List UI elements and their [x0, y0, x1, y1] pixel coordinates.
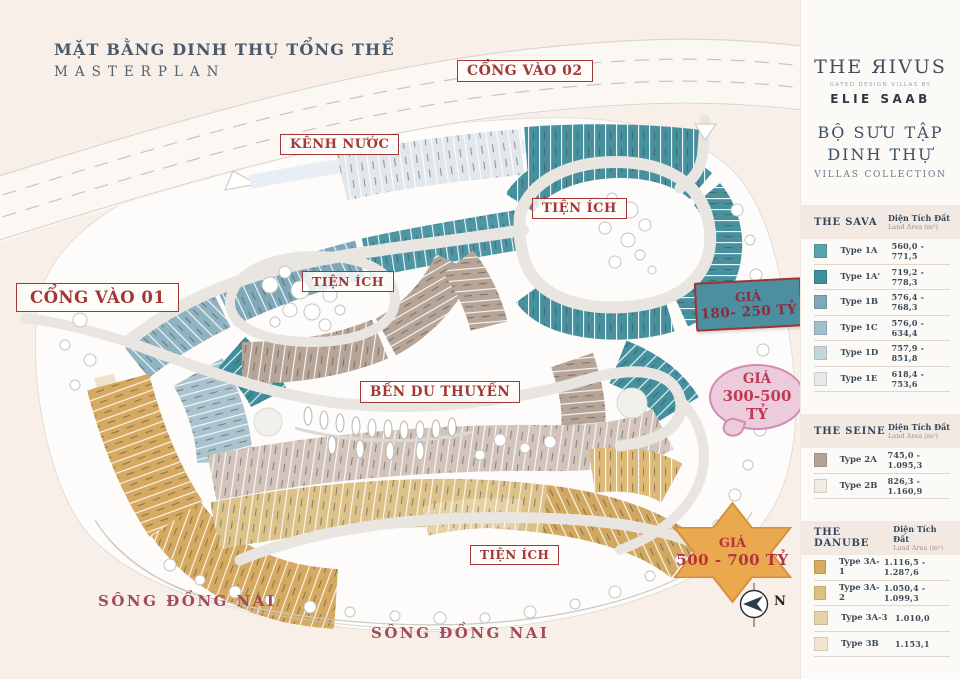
legend-type-swatch [814, 453, 827, 467]
collection-subtitle: VILLAS COLLECTION [801, 170, 960, 180]
legend-area-header-en: Land Area (m²) [893, 544, 950, 552]
legend-area-header: Diện Tích ĐấtLand Area (m²) [888, 422, 950, 440]
price-range: 500 - 700 TỶ [663, 551, 802, 569]
label-canal: KÊNH NƯỚC [280, 134, 399, 155]
legend-area-value: 560,0 - 771,5 [892, 241, 950, 261]
legend-type-label: Type 1A' [840, 272, 891, 282]
legend-type-label: Type 1C [840, 323, 891, 333]
price-label: GIÁ [711, 371, 803, 387]
price-range: 300-500 TỶ [711, 387, 803, 423]
legend-row: Type 1D757,9 - 851,8 [814, 341, 950, 367]
legend-area-header-vi: Diện Tích Đất [893, 524, 950, 544]
compass-icon [734, 583, 774, 627]
legend-row: Type 3A-31.010,0 [814, 606, 950, 632]
legend-section-header: THE DANUBEDiện Tích ĐấtLand Area (m²) [801, 521, 960, 555]
legend-section: THE SEINEDiện Tích ĐấtLand Area (m²)Type… [801, 414, 960, 499]
legend-area-header: Diện Tích ĐấtLand Area (m²) [893, 524, 950, 552]
legend-type-swatch [814, 372, 827, 386]
legend-type-swatch [814, 560, 826, 574]
legend-type-label: Type 3B [841, 639, 895, 649]
legend-row: Type 1C576,0 - 634,4 [814, 316, 950, 342]
legend-row: Type 3A-11.116,5 - 1.287,6 [814, 555, 950, 581]
label-river-left: SÔNG ĐỒNG NAI [98, 592, 276, 610]
legend-type-label: Type 1E [840, 374, 891, 384]
legend-row: Type 3A-21.050,4 - 1.099,3 [814, 581, 950, 607]
info-panel: THE ЯIVUS GATED DESIGN VILLAS BY ELIE SA… [800, 0, 960, 679]
legend-type-swatch [814, 479, 827, 493]
legend-row: Type 1A'719,2 - 778,3 [814, 265, 950, 291]
legend-area-value: 757,9 - 851,8 [892, 343, 950, 363]
legend-area-value: 576,4 - 768,3 [892, 292, 950, 312]
collection-line1: BỘ SƯU TẬP [801, 122, 960, 144]
page-title: MẶT BẰNG DINH THỤ TỔNG THỂ MASTERPLAN [54, 40, 395, 80]
legend-area-header-vi: Diện Tích Đất [888, 422, 950, 432]
legend-row: Type 2B826,3 - 1.160,9 [814, 474, 950, 500]
legend-area-value: 576,0 - 634,4 [892, 318, 950, 338]
label-amenity-left: TIỆN ÍCH [302, 271, 394, 292]
label-gate-01: CỔNG VÀO 01 [16, 283, 179, 312]
legend-type-label: Type 2B [840, 481, 888, 491]
title-english: MASTERPLAN [54, 64, 395, 80]
legend-area-header-en: Land Area (m²) [888, 223, 950, 231]
legend-section-name: THE SAVA [814, 217, 877, 228]
legend-type-swatch [814, 586, 826, 600]
legend-type-label: Type 2A [840, 455, 888, 465]
label-marina: BẾN DU THUYỀN [360, 381, 520, 403]
legend-area-header: Diện Tích ĐấtLand Area (m²) [888, 213, 950, 231]
legend-type-swatch [814, 244, 827, 258]
legend-sections: THE SAVADiện Tích ĐấtLand Area (m²)Type … [801, 205, 960, 679]
legend-section-name: THE DANUBE [814, 527, 893, 549]
legend-area-header-vi: Diện Tích Đất [888, 213, 950, 223]
label-amenity-right: TIỆN ÍCH [532, 198, 627, 219]
masterplan-page: MẶT BẰNG DINH THỤ TỔNG THỂ MASTERPLAN CỔ… [0, 0, 960, 679]
legend-type-label: Type 3A-3 [841, 613, 895, 623]
legend-row: Type 1A560,0 - 771,5 [814, 239, 950, 265]
legend-section: THE DANUBEDiện Tích ĐấtLand Area (m²)Typ… [801, 521, 960, 657]
legend-section-name: THE SEINE [814, 426, 885, 437]
legend-type-swatch [814, 346, 827, 360]
legend-type-label: Type 1B [840, 297, 891, 307]
brand-logo: THE ЯIVUS [801, 56, 960, 78]
legend-type-label: Type 1A [840, 246, 891, 256]
compass: N [734, 583, 794, 627]
legend-area-value: 745,0 - 1.095,3 [888, 450, 950, 470]
legend-type-label: Type 3A-2 [839, 583, 884, 603]
legend-row: Type 1E618,4 - 753,6 [814, 367, 950, 393]
label-river-bottom: SÔNG ĐỒNG NAI [371, 624, 549, 642]
price-callout-tier2: GIÁ 300-500 TỶ [709, 364, 805, 430]
legend-area-value: 1.116,5 - 1.287,6 [884, 557, 950, 577]
legend-type-label: Type 3A-1 [839, 557, 884, 577]
compass-north-label: N [774, 594, 786, 609]
label-gate-02: CỔNG VÀO 02 [457, 60, 593, 82]
legend-type-swatch [814, 637, 828, 651]
price-callout-tier1: GIÁ 180- 250 TỶ [694, 277, 803, 332]
legend-row: Type 1B576,4 - 768,3 [814, 290, 950, 316]
legend-area-value: 1.050,4 - 1.099,3 [884, 583, 950, 603]
legend-section: THE SAVADiện Tích ĐấtLand Area (m²)Type … [801, 205, 960, 392]
legend-area-header-en: Land Area (m²) [888, 432, 950, 440]
collection-title: BỘ SƯU TẬP DINH THỰ VILLAS COLLECTION [801, 122, 960, 180]
legend-type-swatch [814, 270, 827, 284]
legend-area-value: 1.153,1 [895, 639, 930, 649]
legend-area-value: 826,3 - 1.160,9 [888, 476, 950, 496]
brand-block: THE ЯIVUS GATED DESIGN VILLAS BY ELIE SA… [801, 56, 960, 106]
legend-area-value: 719,2 - 778,3 [892, 267, 950, 287]
legend-section-header: THE SAVADiện Tích ĐấtLand Area (m²) [801, 205, 960, 239]
legend-section-header: THE SEINEDiện Tích ĐấtLand Area (m²) [801, 414, 960, 448]
price-label: GIÁ [663, 536, 802, 551]
legend-area-value: 1.010,0 [895, 613, 930, 623]
collection-line2: DINH THỰ [801, 144, 960, 166]
brand-tagline: GATED DESIGN VILLAS BY [801, 82, 960, 88]
legend-row: Type 3B1.153,1 [814, 632, 950, 658]
legend-row: Type 2A745,0 - 1.095,3 [814, 448, 950, 474]
label-amenity-bottom: TIỆN ÍCH [470, 545, 559, 565]
brand-designer: ELIE SAAB [801, 92, 960, 106]
legend-type-swatch [814, 321, 827, 335]
legend-type-swatch [814, 611, 828, 625]
title-vietnamese: MẶT BẰNG DINH THỤ TỔNG THỂ [54, 40, 395, 59]
legend-area-value: 618,4 - 753,6 [892, 369, 950, 389]
legend-type-swatch [814, 295, 827, 309]
legend-type-label: Type 1D [840, 348, 891, 358]
